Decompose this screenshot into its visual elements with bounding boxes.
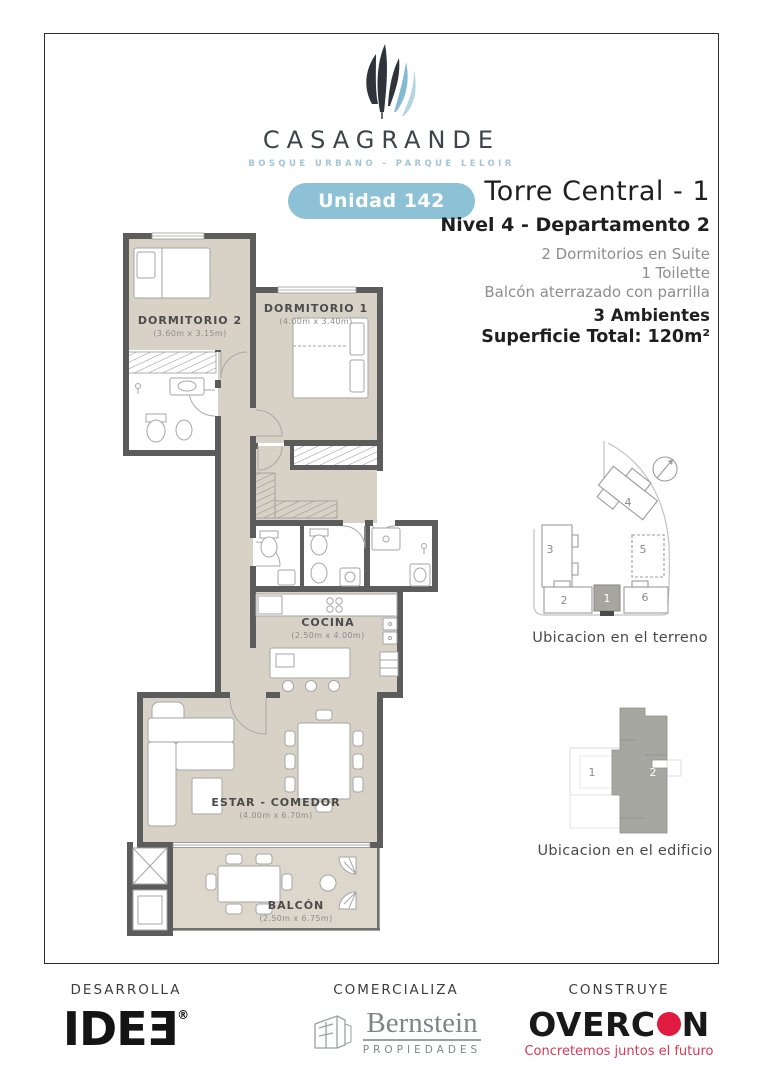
developer-role: DESARROLLA	[36, 982, 216, 998]
building-outline	[570, 708, 681, 833]
building-number: 2	[561, 594, 568, 607]
brand-tagline: BOSQUE URBANO - PARQUE LELOIR	[0, 159, 763, 169]
site-map-caption: Ubicacion en el terreno	[520, 630, 720, 646]
building-number: 4	[625, 496, 632, 509]
room-dims: (4.00m x 3.40m)	[279, 317, 352, 326]
unit-number: 2	[650, 766, 657, 779]
room-name: DORMITORIO 1	[264, 302, 368, 315]
footer: DESARROLLA IDEƎ® COMERCIALIZA Bernstein	[0, 982, 763, 1080]
overcon-red-dot-icon	[657, 1012, 681, 1036]
overcon-text-right: N	[682, 1005, 710, 1044]
building-number: 1	[604, 592, 611, 605]
brand-name: CASAGRANDE	[0, 126, 763, 154]
room-dims: (3.60m x 3.15m)	[153, 329, 226, 338]
bed-dorm1	[293, 318, 368, 398]
overcon-text-left: OVERC	[528, 1005, 655, 1044]
room-name: ESTAR - COMEDOR	[211, 796, 340, 809]
developer-column: DESARROLLA IDEƎ®	[36, 982, 216, 1052]
casagrande-leaf-icon	[342, 42, 422, 120]
bernstein-sub: PROPIEDADES	[363, 1044, 481, 1056]
overcon-tagline: Concretemos juntos el futuro	[519, 1044, 719, 1059]
building-map-caption: Ubicacion en el edificio	[525, 843, 725, 859]
building-map-drawing: 1 2	[540, 700, 730, 835]
registered-mark: ®	[177, 1008, 189, 1022]
idee-logo-text: IDEƎ	[63, 1002, 177, 1056]
highlighted-unit	[612, 708, 667, 833]
room-dims: (2.50m x 6.75m)	[259, 914, 332, 923]
builder-column: CONSTRUYE OVERCN Concretemos juntos el f…	[519, 982, 719, 1059]
site-map-drawing: 1 2 3 4 5 6	[528, 437, 728, 622]
bernstein-building-icon	[311, 1012, 355, 1052]
broker-role: COMERCIALIZA	[296, 982, 496, 998]
room-name: DORMITORIO 2	[138, 314, 242, 327]
idee-logo: IDEƎ®	[36, 1006, 216, 1052]
building-location: 1 2 Ubicacion en el edificio	[525, 700, 725, 859]
room-dims: (2.50m x 4.00m)	[291, 631, 364, 640]
flyer-page: CASAGRANDE BOSQUE URBANO - PARQUE LELOIR…	[0, 0, 763, 1080]
room-name: COCINA	[301, 616, 354, 629]
builder-role: CONSTRUYE	[519, 982, 719, 998]
bernstein-logo: Bernstein	[363, 1008, 481, 1041]
site-location: 1 2 3 4 5 6 Ubicacion en el terreno	[520, 437, 720, 646]
floorplan: DORMITORIO 2 (3.60m x 3.15m) DORMITORIO …	[118, 228, 458, 943]
overcon-logo: OVERCN	[519, 1008, 719, 1041]
building-number: 3	[547, 543, 554, 556]
room-name: BALCÓN	[268, 899, 325, 912]
tower-title: Torre Central - 1	[390, 176, 710, 207]
unit-number: 1	[589, 766, 596, 779]
broker-column: COMERCIALIZA Bernstein PROPIEDADES	[296, 982, 496, 1056]
bed-dorm2	[134, 248, 210, 298]
building-number: 5	[640, 543, 647, 556]
building-number: 6	[642, 591, 649, 604]
room-dims: (4.00m x 6.70m)	[239, 811, 312, 820]
